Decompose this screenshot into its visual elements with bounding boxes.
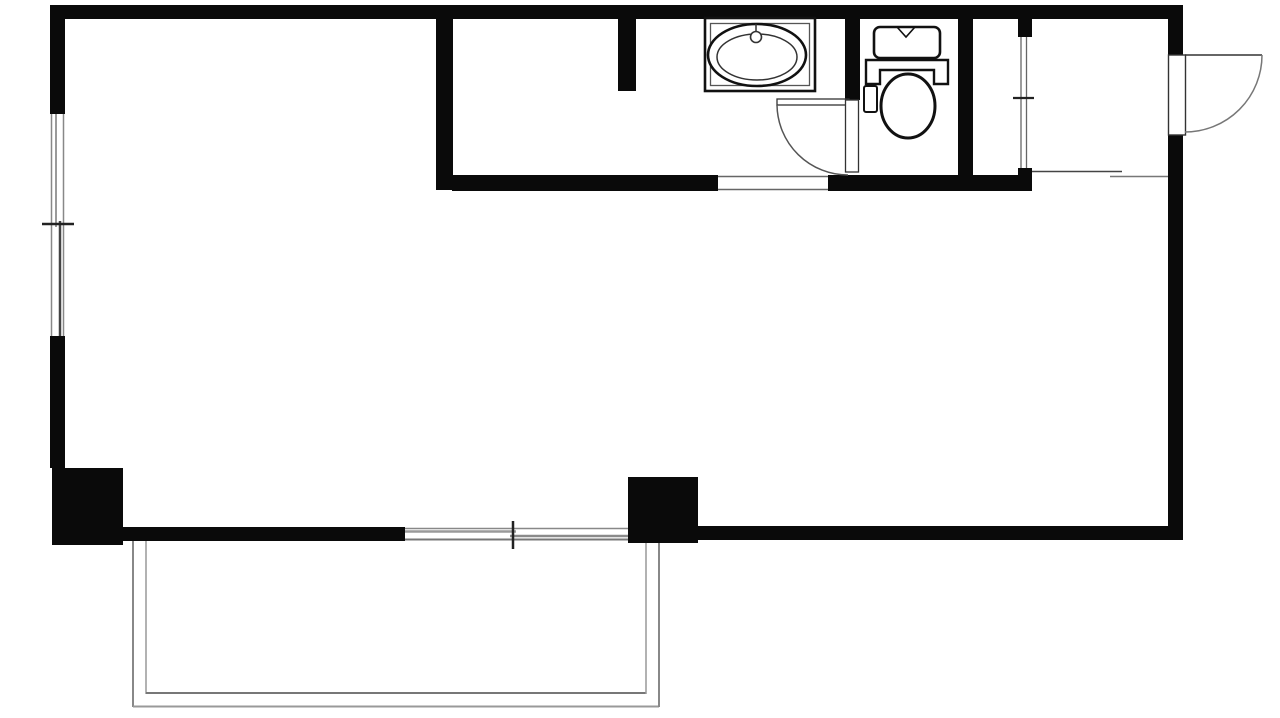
- right-wall-upper: [1168, 5, 1183, 55]
- top-wall: [55, 5, 1183, 19]
- toilet-door-open-leaf: [777, 99, 849, 105]
- left-wall-upper: [50, 5, 65, 114]
- toilet-right-wall: [958, 19, 973, 191]
- sink-faucet: [751, 32, 762, 43]
- toilet-door-arc: [777, 105, 848, 175]
- bottom-wall-right: [698, 526, 1183, 540]
- left-pillar: [52, 468, 123, 545]
- interior-wall-horizontal-left: [452, 175, 718, 191]
- bottom-wall-left: [123, 527, 405, 541]
- closet-stub-bottom: [1018, 168, 1032, 191]
- closet-stub-top: [1018, 19, 1032, 37]
- toilet-door-frame-leaf: [846, 100, 859, 172]
- interior-wall-vertical: [436, 19, 453, 190]
- right-wall-lower: [1168, 135, 1183, 540]
- kitchen-stub-wall: [618, 19, 636, 91]
- left-wall-lower: [50, 336, 65, 468]
- toilet-tank: [874, 27, 940, 58]
- main-room-opening-bg: [718, 175, 828, 191]
- interior-wall-horizontal-right: [828, 175, 1032, 191]
- floor-plan-canvas: [0, 0, 1280, 718]
- toilet-control-panel: [864, 86, 877, 112]
- entrance-door-arc: [1185, 55, 1262, 132]
- toilet-bowl: [881, 74, 935, 138]
- floor-plan-svg: [0, 0, 1280, 718]
- toilet-left-wall: [845, 19, 860, 100]
- entrance-door-leaf: [1169, 55, 1186, 135]
- right-pillar: [628, 477, 698, 543]
